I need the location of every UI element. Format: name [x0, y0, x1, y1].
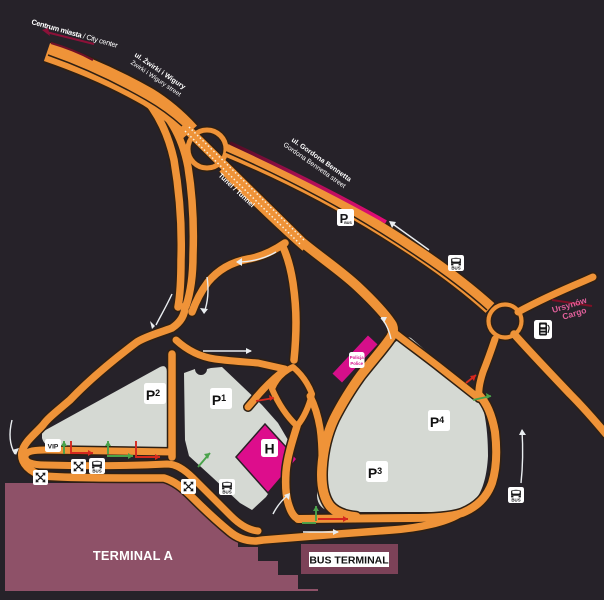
svg-text:Police: Police: [350, 361, 363, 366]
svg-text:BUS: BUS: [344, 221, 352, 225]
svg-text:BUS TERMINAL: BUS TERMINAL: [309, 555, 389, 567]
svg-text:VIP: VIP: [48, 444, 59, 451]
svg-text:TERMINAL A: TERMINAL A: [93, 548, 173, 563]
svg-text:Policja: Policja: [350, 355, 364, 360]
svg-text:H: H: [264, 441, 274, 457]
